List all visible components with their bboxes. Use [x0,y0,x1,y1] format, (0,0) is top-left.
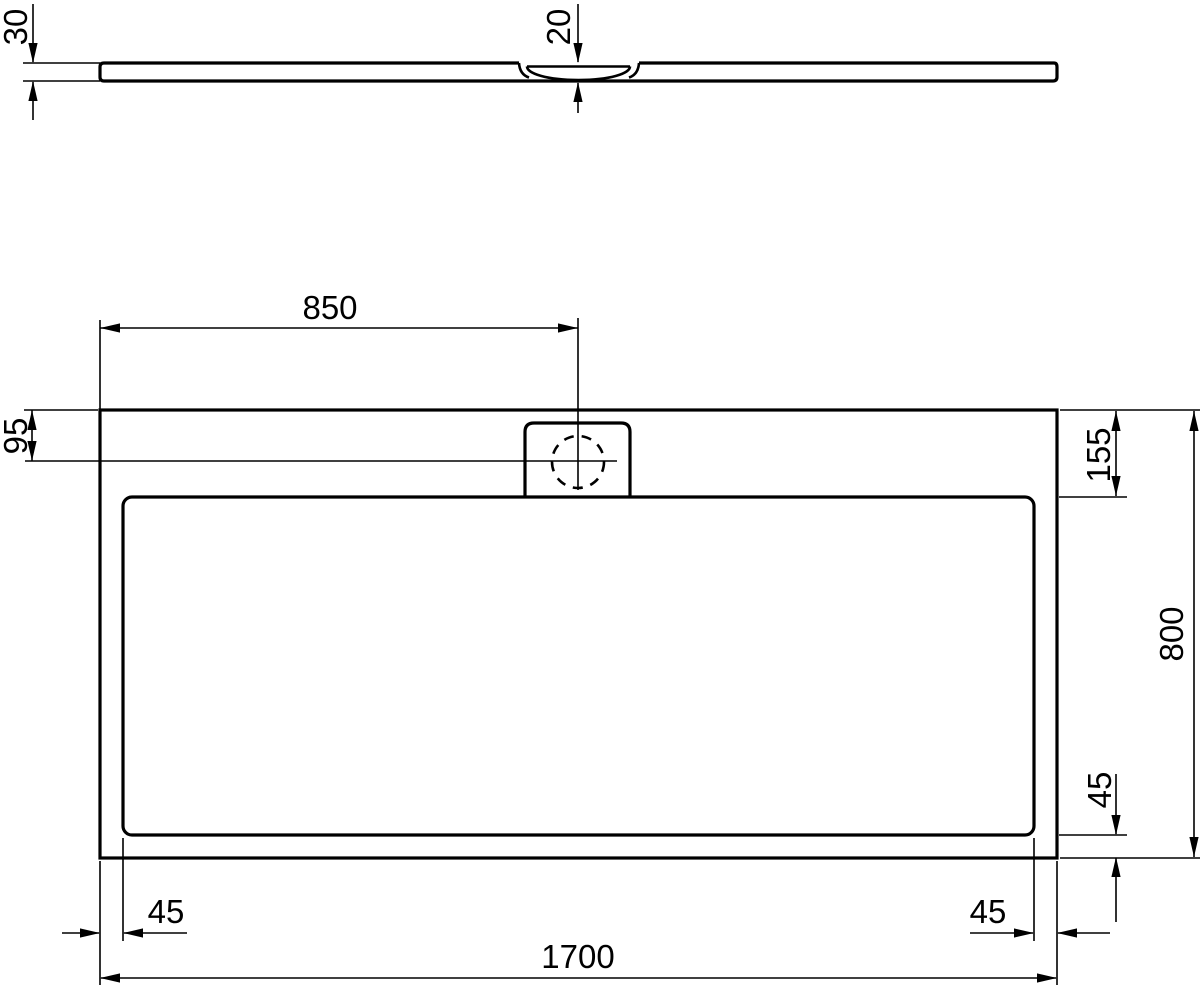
arrowhead-down [1111,815,1120,835]
drain-cover-plate [527,67,630,81]
dim-label-border-bottom-left: 45 [148,893,185,930]
side-view: 30 20 [0,4,1057,120]
dim-label-side-drain-depth: 20 [540,9,577,46]
dim-label-drain-from-top: 95 [0,418,34,455]
drain-recess-right-lip [629,63,639,78]
dim-border-bottom-right: 45 [970,838,1110,941]
shower-tray-technical-drawing: 30 20 850 [0,0,1200,986]
dim-border-right-side: 45 [1059,772,1127,922]
arrowhead-down [1189,837,1198,857]
arrowhead-left [123,928,143,937]
arrowhead-up [1111,857,1120,877]
arrowhead-left [1057,928,1077,937]
dim-label-border-right-side: 45 [1081,772,1118,809]
arrowhead-right [558,323,578,332]
dim-label-border-bottom-right: 45 [970,893,1007,930]
arrowhead-up [573,82,582,102]
dim-side-thickness: 30 [0,4,100,120]
tray-floor-outline [123,497,1034,835]
dim-label-drain-from-left: 850 [302,289,357,326]
arrowhead-left [100,973,120,982]
dim-overall-length: 1700 [100,861,1057,985]
dim-drain-from-top: 95 [0,410,98,461]
dim-label-overall-width: 800 [1153,606,1190,661]
dim-label-side-thickness: 30 [0,9,34,46]
dim-drain-from-left: 850 [100,289,578,409]
dim-label-border-top-right: 155 [1080,427,1117,482]
arrowhead-up [28,81,37,101]
arrowhead-right [80,928,100,937]
plan-view: 850 95 155 800 [0,289,1200,985]
arrowhead-left [100,323,120,332]
dim-border-top-right: 155 [1059,411,1127,497]
arrowhead-right [1037,973,1057,982]
arrowhead-right [1014,928,1034,937]
dim-border-bottom-left: 45 [62,838,187,941]
arrowhead-up [1189,411,1198,431]
dim-side-drain-depth: 20 [540,4,583,113]
technical-drawing-page: 30 20 850 [0,0,1200,986]
dim-label-overall-length: 1700 [541,938,614,975]
